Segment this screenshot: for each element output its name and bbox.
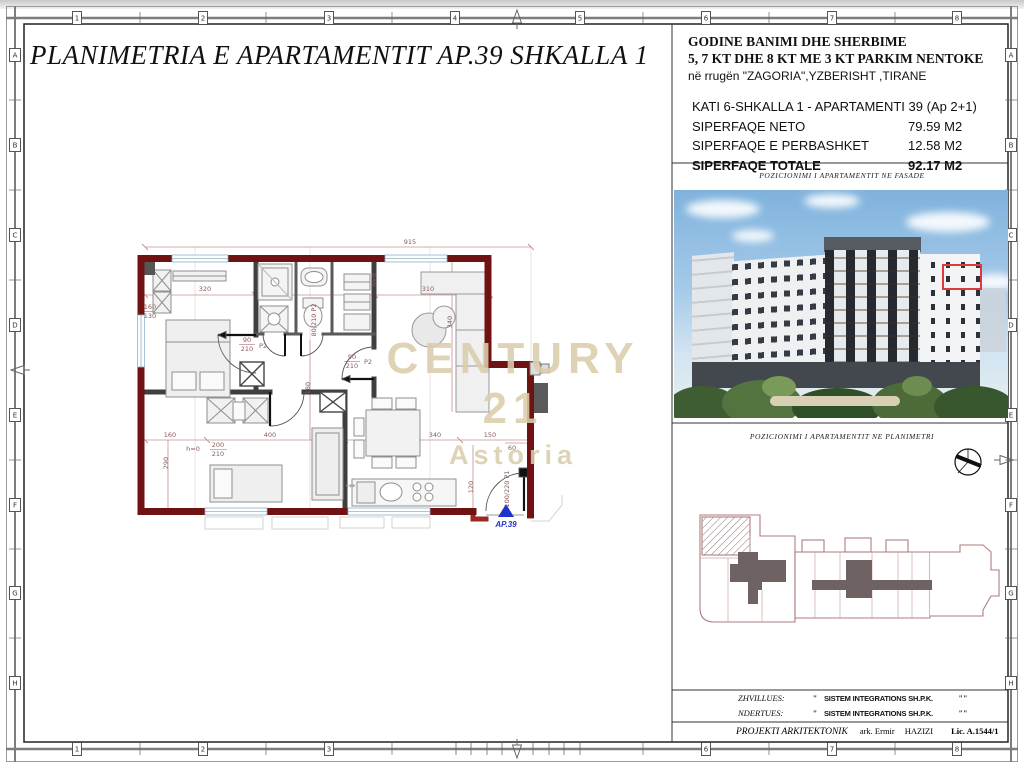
svg-text:A: A [13, 52, 18, 60]
dimension-label: 915 [404, 238, 416, 246]
dimension-label: 210 [212, 450, 224, 458]
svg-text:8: 8 [955, 746, 959, 754]
svg-text:3: 3 [327, 15, 331, 23]
dimension-label: 130 [144, 312, 156, 320]
dimension-label: 200 [212, 441, 224, 449]
caption-fasade: POZICIONIMI I APARTAMENTIT NE FASADE [676, 171, 1008, 180]
dimension-label: 120 [467, 481, 475, 493]
area-row-neto: SIPERFAQE NETO 79.59 M2 [692, 119, 1004, 134]
area-row-perbashket: SIPERFAQE E PERBASHKET 12.58 M2 [692, 138, 1004, 153]
unit-designation: KATI 6-SHKALLA 1 - APARTAMENTI 39 (Ap 2+… [692, 99, 1004, 114]
svg-text:6: 6 [704, 15, 709, 23]
site-plan [700, 515, 999, 622]
builder-row: NDERTUES: " SISTEM INTEGRATIONS SH.P.K. … [676, 708, 1008, 721]
svg-text:1: 1 [75, 15, 79, 23]
svg-text:F: F [1009, 502, 1013, 510]
dimension-label: 210 [346, 362, 358, 370]
dimension-label: 400 [264, 431, 276, 439]
unit-label: AP.39 [494, 520, 517, 529]
dimension-label: 90 [243, 336, 251, 344]
svg-text:5: 5 [578, 15, 582, 23]
title-block: ZHVILLUES: " SISTEM INTEGRATIONS SH.P.K.… [676, 691, 1008, 721]
dimension-label: P2 [259, 342, 267, 350]
dimension-label: 290 [162, 457, 170, 469]
dimension-label: 90 [348, 353, 356, 361]
architect-row: PROJEKTI ARKITEKTONIK ark. Ermir HAZIZI … [676, 726, 1008, 737]
apartment-highlight-box [942, 264, 982, 290]
dimension-label: 160 [164, 431, 176, 439]
building-name-line2: 5, 7 KT DHE 8 KT ME 3 KT PARKIM NENTOKE [688, 50, 1004, 67]
building-address: në rrugën "ZAGORIA",YZBERISHT ,TIRANE [688, 69, 1004, 83]
license-number: Lic. A.1544/1 [951, 726, 998, 736]
apartment-position-hatch [702, 517, 750, 555]
building-name-line1: GODINE BANIMI DHE SHERBIME [688, 33, 1004, 50]
project-info-block: GODINE BANIMI DHE SHERBIME 5, 7 KT DHE 8… [688, 33, 1004, 173]
developer-row: ZHVILLUES: " SISTEM INTEGRATIONS SH.P.K.… [676, 693, 1008, 706]
svg-text:2: 2 [201, 746, 205, 754]
building-render-photo [674, 190, 1008, 418]
dimension-label: 310 [422, 285, 434, 293]
dimension-label: 160 [144, 303, 156, 311]
svg-text:C: C [1009, 232, 1014, 240]
svg-text:4: 4 [453, 15, 458, 23]
dimension-label: 340 [446, 316, 454, 328]
svg-text:D: D [1008, 322, 1013, 330]
dimension-label: 150 [484, 431, 496, 439]
svg-text:H: H [1008, 680, 1013, 688]
background-building [980, 288, 1006, 352]
building-ground-floor [692, 362, 980, 388]
svg-text:E: E [13, 412, 17, 420]
svg-text:C: C [13, 232, 18, 240]
garden-path [770, 396, 900, 406]
svg-text:B: B [13, 142, 18, 150]
svg-text:B: B [1009, 142, 1014, 150]
svg-text:1: 1 [75, 746, 79, 754]
floor-plan: *** [138, 238, 563, 529]
building-left-face [732, 255, 828, 376]
svg-text:D: D [12, 322, 17, 330]
svg-text:3: 3 [327, 746, 331, 754]
building-balcony-face [825, 250, 920, 374]
dimension-label: 180 [304, 382, 312, 394]
dimension-label: 100/220 P1 [503, 470, 511, 507]
svg-text:E: E [1009, 412, 1013, 420]
svg-text:A: A [1009, 52, 1014, 60]
compass-icon [955, 449, 981, 475]
dimension-label: 210 [241, 345, 253, 353]
svg-text:***: *** [345, 483, 356, 491]
svg-text:7: 7 [830, 746, 834, 754]
svg-text:2: 2 [201, 15, 205, 23]
dimension-label: 60 [508, 444, 516, 452]
dimension-label: 340 [429, 431, 441, 439]
shaft [534, 383, 548, 413]
drawing-sheet: 12345678123678AABBCCDDEEFFGGHH [0, 0, 1024, 768]
svg-text:7: 7 [830, 15, 834, 23]
dimension-label: h=0 [370, 273, 378, 287]
page-title: PLANIMETRIA E APARTAMENTIT AP.39 SHKALLA… [30, 40, 650, 71]
svg-text:G: G [12, 590, 17, 598]
building-left-wing [692, 252, 734, 372]
svg-text:6: 6 [704, 746, 709, 754]
caption-planimetri: POZICIONIMI I APARTAMENTIT NE PLANIMETRI [676, 432, 1008, 441]
svg-text:F: F [13, 502, 17, 510]
svg-text:8: 8 [955, 15, 959, 23]
svg-text:G: G [1008, 590, 1013, 598]
dimension-label: P2 [364, 358, 372, 366]
dimension-label: h=0 [186, 445, 200, 453]
dimension-label: 80/210 P2 [310, 304, 318, 337]
dimension-label: 320 [199, 285, 211, 293]
svg-text:H: H [12, 680, 17, 688]
